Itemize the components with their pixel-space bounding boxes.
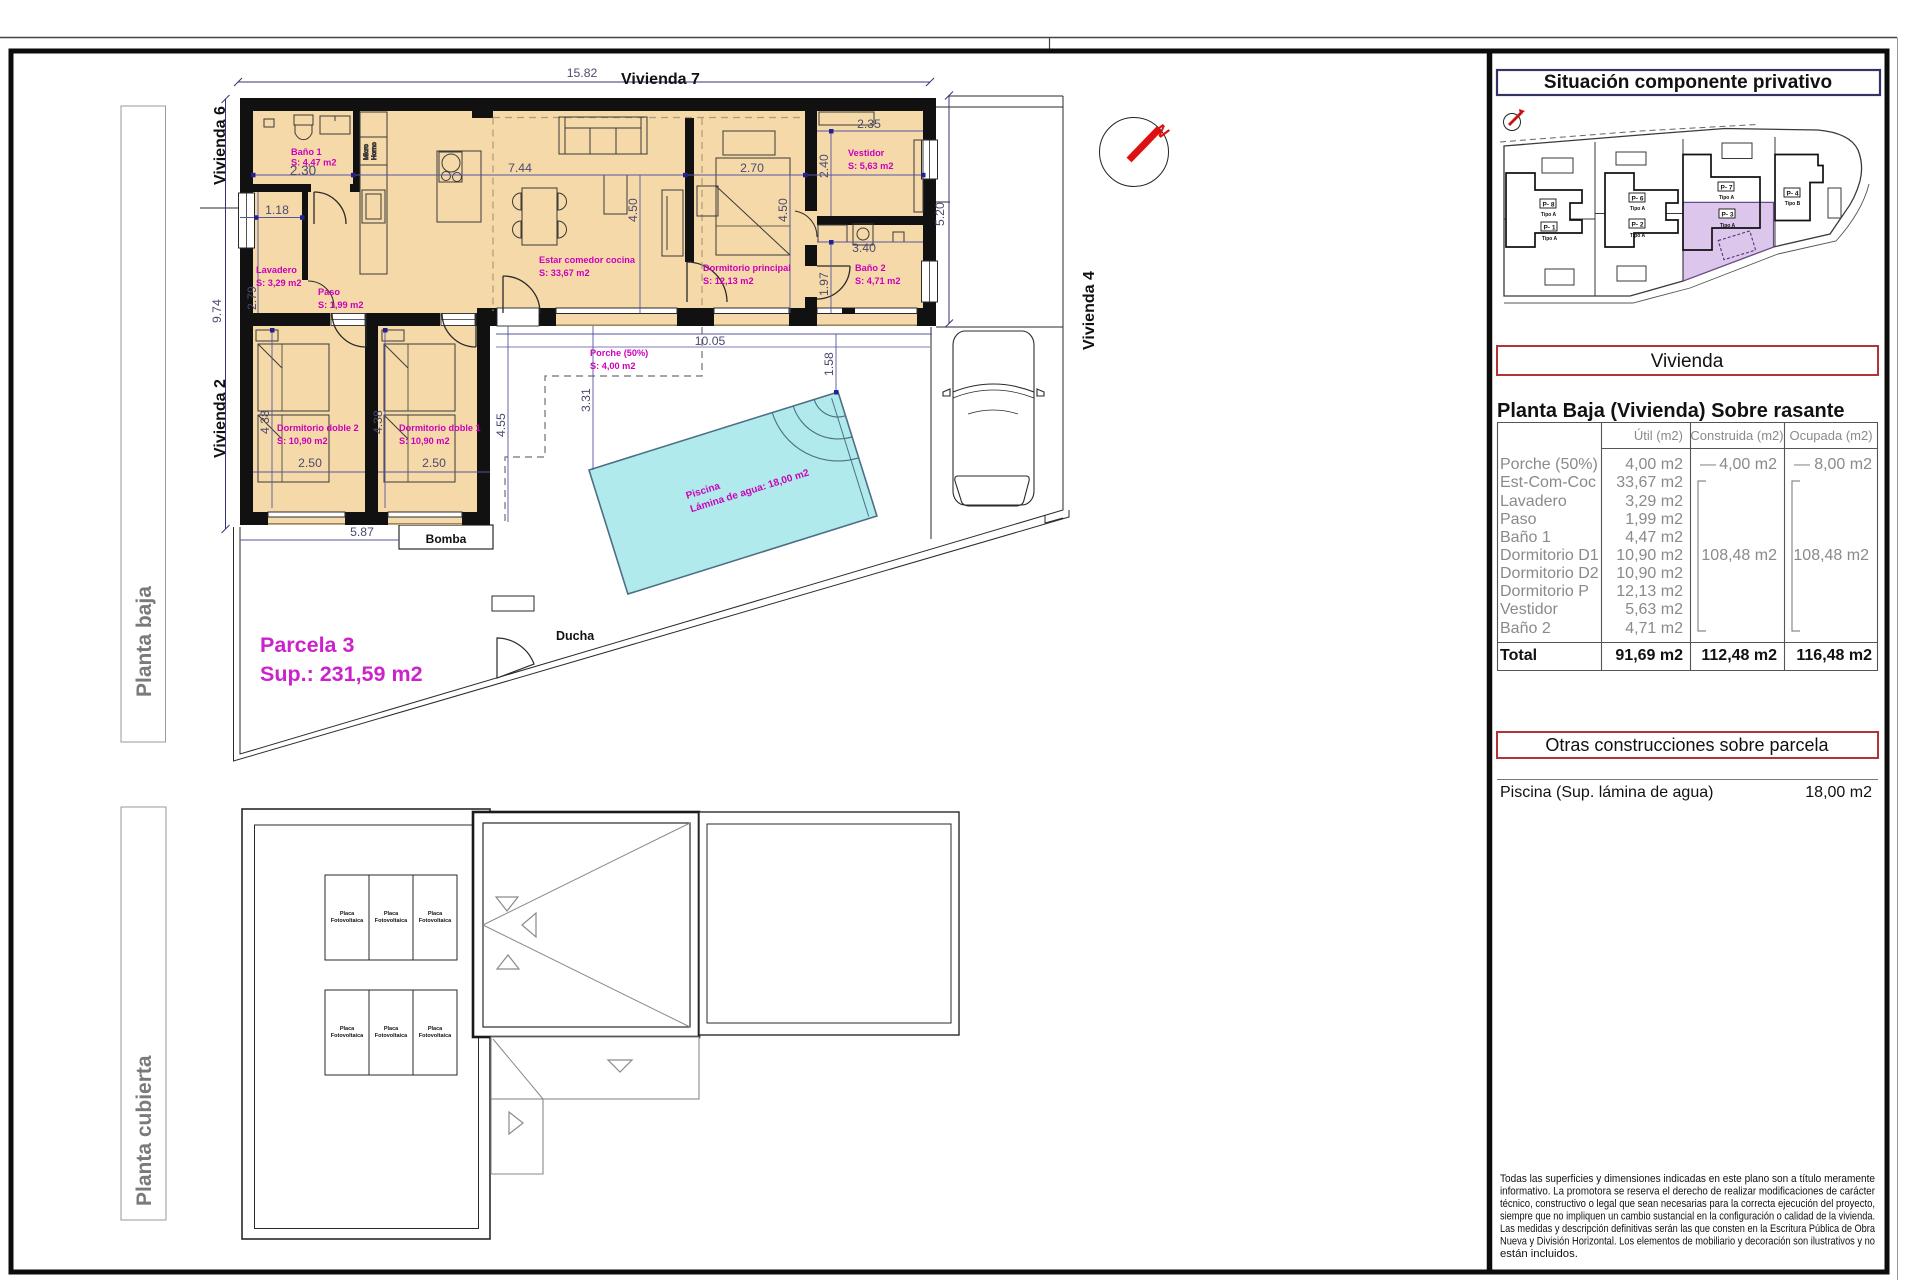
svg-text:2.50: 2.50 <box>422 456 446 470</box>
svg-text:Placa: Placa <box>384 911 399 917</box>
svg-text:P- 4: P- 4 <box>1787 191 1799 198</box>
svg-text:Fotovoltaica: Fotovoltaica <box>331 1033 364 1039</box>
svg-text:informativo. La promotora se r: informativo. La promotora se reserva el … <box>1500 1186 1875 1198</box>
svg-text:Porche (50%): Porche (50%) <box>1500 456 1598 473</box>
svg-text:S: 1,99 m2: S: 1,99 m2 <box>318 300 363 310</box>
svg-text:5.87: 5.87 <box>350 525 374 539</box>
svg-text:Piscina (Sup. lámina de agua): Piscina (Sup. lámina de agua) <box>1500 784 1713 801</box>
svg-text:Porche (50%): Porche (50%) <box>590 348 648 358</box>
svg-text:1.97: 1.97 <box>817 272 831 296</box>
svg-text:Baño 1: Baño 1 <box>291 147 322 157</box>
svg-text:P- 6: P- 6 <box>1632 196 1644 203</box>
svg-text:siempre que no impliquen un ca: siempre que no impliquen un cambio susta… <box>1500 1211 1875 1223</box>
svg-text:Vestidor: Vestidor <box>848 148 885 158</box>
svg-text:12,13 m2: 12,13 m2 <box>1616 583 1683 600</box>
svg-text:4,00 m2: 4,00 m2 <box>1719 456 1777 473</box>
svg-text:112,48 m2: 112,48 m2 <box>1701 647 1777 664</box>
svg-text:Tipo A: Tipo A <box>1630 206 1646 212</box>
svg-text:2.35: 2.35 <box>857 117 881 131</box>
svg-text:10,90 m2: 10,90 m2 <box>1616 547 1683 564</box>
svg-text:S: 4,71 m2: S: 4,71 m2 <box>855 276 900 286</box>
svg-text:Parcela 3: Parcela 3 <box>260 633 354 657</box>
svg-text:P- 3: P- 3 <box>1722 212 1734 219</box>
svg-text:Baño 2: Baño 2 <box>1500 620 1551 637</box>
svg-text:Tipo A: Tipo A <box>1541 212 1557 218</box>
svg-text:Placa: Placa <box>428 1026 443 1032</box>
svg-text:Fotovoltaica: Fotovoltaica <box>331 918 364 924</box>
svg-text:91,69 m2: 91,69 m2 <box>1615 647 1683 664</box>
svg-text:Vivienda 7: Vivienda 7 <box>621 71 700 88</box>
svg-text:Dormitorio doble 2: Dormitorio doble 2 <box>277 423 359 433</box>
svg-text:Placa: Placa <box>384 1026 399 1032</box>
svg-text:Vivienda 2: Vivienda 2 <box>212 379 229 458</box>
svg-text:4,71 m2: 4,71 m2 <box>1625 620 1683 637</box>
svg-text:Total: Total <box>1500 647 1537 664</box>
svg-text:5,63 m2: 5,63 m2 <box>1625 601 1683 618</box>
svg-text:Ocupada (m2): Ocupada (m2) <box>1789 428 1872 443</box>
svg-text:Tipo A: Tipo A <box>1719 195 1735 201</box>
svg-text:3.40: 3.40 <box>852 241 876 255</box>
svg-text:2.79: 2.79 <box>245 286 259 310</box>
svg-text:2.40: 2.40 <box>817 154 831 178</box>
svg-text:S: 4,00 m2: S: 4,00 m2 <box>590 361 635 371</box>
svg-text:S: 10,90 m2: S: 10,90 m2 <box>399 436 450 446</box>
svg-text:Útil (m2): Útil (m2) <box>1634 428 1683 443</box>
svg-text:Vivienda: Vivienda <box>1651 351 1724 372</box>
svg-text:P- 8: P- 8 <box>1543 202 1555 209</box>
svg-text:Tipo A: Tipo A <box>1720 223 1736 229</box>
svg-text:Est-Com-Coc: Est-Com-Coc <box>1500 474 1596 491</box>
svg-text:Todas las superficies y dimens: Todas las superficies y dimensiones indi… <box>1500 1173 1875 1185</box>
svg-text:S: 5,63 m2: S: 5,63 m2 <box>848 161 893 171</box>
svg-text:P- 2: P- 2 <box>1632 222 1644 229</box>
svg-text:S: 12,13 m2: S: 12,13 m2 <box>703 276 754 286</box>
svg-text:5.20: 5.20 <box>933 202 947 226</box>
svg-text:Vestidor: Vestidor <box>1500 601 1558 618</box>
svg-text:116,48 m2: 116,48 m2 <box>1796 647 1872 664</box>
svg-text:Situación componente privativo: Situación componente privativo <box>1544 72 1832 93</box>
svg-text:Otras construcciones sobre par: Otras construcciones sobre parcela <box>1545 735 1829 755</box>
svg-text:Micro: Micro <box>363 144 370 160</box>
svg-text:Ducha: Ducha <box>556 629 595 643</box>
svg-text:108,48 m2: 108,48 m2 <box>1793 547 1869 564</box>
svg-text:técnico, constructivo o legal: técnico, constructivo o legal que sean n… <box>1500 1198 1875 1210</box>
svg-text:P- 7: P- 7 <box>1721 185 1733 192</box>
svg-text:Bomba: Bomba <box>426 532 467 546</box>
svg-text:Lavadero: Lavadero <box>1500 493 1567 510</box>
svg-text:Dormitorio doble 1: Dormitorio doble 1 <box>399 423 481 433</box>
svg-text:1,99 m2: 1,99 m2 <box>1625 511 1683 528</box>
svg-text:Lavadero: Lavadero <box>256 265 297 275</box>
svg-text:Construida (m2): Construida (m2) <box>1690 428 1783 443</box>
svg-text:S: 4,47 m2: S: 4,47 m2 <box>291 158 336 168</box>
svg-text:18,00 m2: 18,00 m2 <box>1805 784 1872 801</box>
svg-text:Planta Baja (Vivienda) Sobre r: Planta Baja (Vivienda) Sobre rasante <box>1497 400 1845 422</box>
svg-text:S: 10,90 m2: S: 10,90 m2 <box>277 436 328 446</box>
svg-text:9.74: 9.74 <box>210 299 224 323</box>
svg-text:Tipo A: Tipo A <box>1630 233 1646 239</box>
svg-text:Tipo B: Tipo B <box>1785 201 1801 207</box>
svg-text:10.05: 10.05 <box>695 334 726 348</box>
svg-text:S: 33,67 m2: S: 33,67 m2 <box>539 268 590 278</box>
svg-text:Paso: Paso <box>1500 511 1537 528</box>
svg-text:Dormitorio D1: Dormitorio D1 <box>1500 547 1599 564</box>
svg-text:Horno: Horno <box>371 142 378 160</box>
svg-text:Tipo A: Tipo A <box>1542 236 1558 242</box>
svg-text:Las medidas y descripción defi: Las medidas y descripción definitivas se… <box>1500 1223 1876 1235</box>
svg-text:Fotovoltaica: Fotovoltaica <box>419 1033 452 1039</box>
svg-text:Fotovoltaica: Fotovoltaica <box>419 918 452 924</box>
svg-text:3.31: 3.31 <box>579 388 593 412</box>
svg-text:33,67 m2: 33,67 m2 <box>1616 474 1683 491</box>
svg-text:7.44: 7.44 <box>508 161 532 175</box>
svg-text:4.38: 4.38 <box>371 410 385 434</box>
svg-text:15.82: 15.82 <box>567 66 598 80</box>
svg-text:4.38: 4.38 <box>258 410 272 434</box>
svg-text:1.58: 1.58 <box>822 352 836 376</box>
svg-text:2.70: 2.70 <box>740 161 764 175</box>
svg-text:Dormitorio principal: Dormitorio principal <box>703 263 791 273</box>
svg-text:10,90 m2: 10,90 m2 <box>1616 565 1683 582</box>
svg-text:—: — <box>1700 456 1716 473</box>
svg-text:3,29 m2: 3,29 m2 <box>1625 493 1683 510</box>
svg-text:Fotovoltaica: Fotovoltaica <box>375 918 408 924</box>
svg-text:108,48 m2: 108,48 m2 <box>1701 547 1777 564</box>
svg-text:Paso: Paso <box>318 287 340 297</box>
svg-text:—: — <box>1794 456 1810 473</box>
svg-text:Fotovoltaica: Fotovoltaica <box>375 1033 408 1039</box>
svg-text:Baño 2: Baño 2 <box>855 263 886 273</box>
svg-text:Dormitorio D2: Dormitorio D2 <box>1500 565 1599 582</box>
svg-text:8,00 m2: 8,00 m2 <box>1814 456 1872 473</box>
svg-text:Vivienda 6: Vivienda 6 <box>212 106 229 185</box>
svg-text:están incluidos.: están incluidos. <box>1500 1248 1578 1260</box>
svg-text:1.18: 1.18 <box>265 203 289 217</box>
svg-text:Placa: Placa <box>340 911 355 917</box>
svg-text:P- 1: P- 1 <box>1544 225 1556 232</box>
svg-text:Dormitorio P: Dormitorio P <box>1500 583 1589 600</box>
svg-text:Planta cubierta: Planta cubierta <box>133 1055 156 1206</box>
svg-text:4.55: 4.55 <box>494 413 508 437</box>
svg-text:Estar comedor cocina: Estar comedor cocina <box>539 255 636 265</box>
svg-text:4.50: 4.50 <box>626 198 640 222</box>
svg-text:4.50: 4.50 <box>776 198 790 222</box>
svg-text:Placa: Placa <box>340 1026 355 1032</box>
svg-text:Vivienda 4: Vivienda 4 <box>1081 271 1098 350</box>
svg-text:Sup.: 231,59 m2: Sup.: 231,59 m2 <box>260 662 423 686</box>
svg-text:4,47 m2: 4,47 m2 <box>1625 529 1683 546</box>
svg-text:Placa: Placa <box>428 911 443 917</box>
svg-text:Planta baja: Planta baja <box>133 586 156 697</box>
svg-text:S: 3,29 m2: S: 3,29 m2 <box>256 278 301 288</box>
svg-text:Baño 1: Baño 1 <box>1500 529 1551 546</box>
svg-text:Nueva y División Horizontal. L: Nueva y División Horizontal. Los element… <box>1500 1236 1875 1248</box>
svg-text:4,00 m2: 4,00 m2 <box>1625 456 1683 473</box>
svg-text:2.50: 2.50 <box>298 456 322 470</box>
